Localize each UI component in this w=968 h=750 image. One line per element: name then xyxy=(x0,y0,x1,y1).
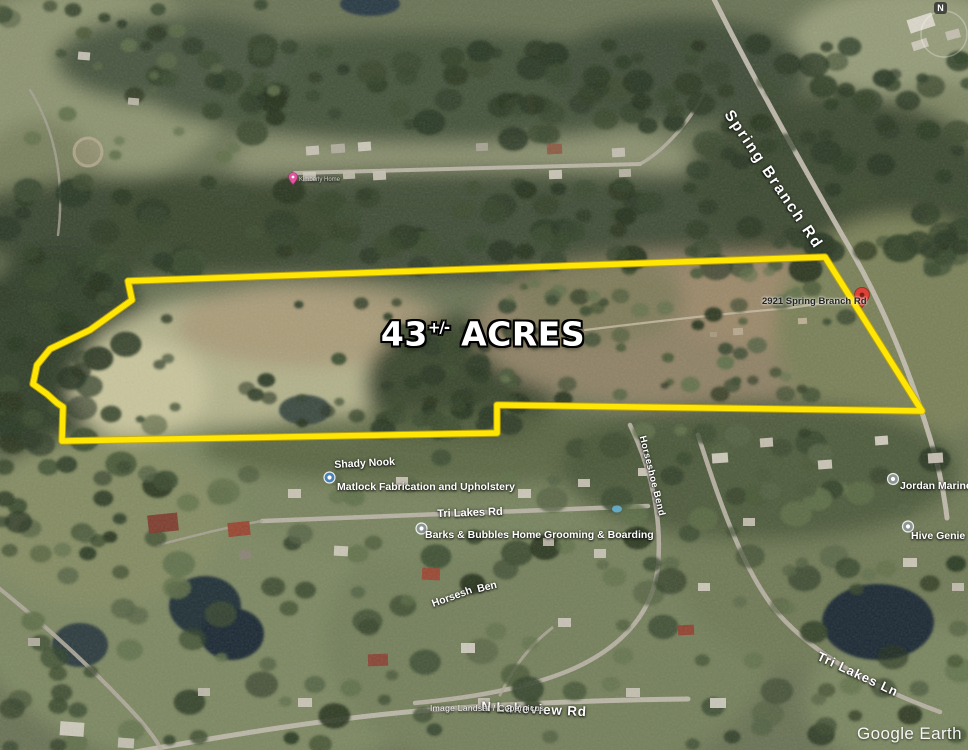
acreage-tolerance: +/- xyxy=(428,319,449,337)
google-earth-map-view[interactable]: Spring Branch Rd 43+/- ACRES 2921 Spring… xyxy=(0,0,968,750)
place-label-barks-and-bubbles[interactable]: Barks & Bubbles Home Grooming & Boarding xyxy=(425,529,654,541)
place-label-jordan-marine[interactable]: Jordan Marine Cons xyxy=(900,480,968,492)
place-label-kimberly[interactable]: Kimberly Home xyxy=(299,177,340,183)
blue-business-marker-icon xyxy=(324,472,335,483)
acreage-unit: ACRES xyxy=(461,315,585,354)
gray-business-marker-icon xyxy=(888,474,899,485)
place-label-matlock-fabrication[interactable]: Matlock Fabrication and Upholstery xyxy=(337,481,515,493)
imagery-attribution: Image Landsat / Copernicus xyxy=(430,703,544,713)
compass-north-indicator[interactable]: N xyxy=(934,2,947,14)
road-label-tri-lakes-rd: Tri Lakes Rd xyxy=(437,506,503,520)
address-pin-label[interactable]: 2921 Spring Branch Rd xyxy=(762,296,867,307)
google-earth-watermark: Google Earth xyxy=(857,724,962,744)
acreage-number: 43 xyxy=(381,315,428,354)
acreage-annotation: 43+/- ACRES xyxy=(381,315,585,354)
place-label-hive-genie[interactable]: Hive Genie xyxy=(911,530,965,542)
